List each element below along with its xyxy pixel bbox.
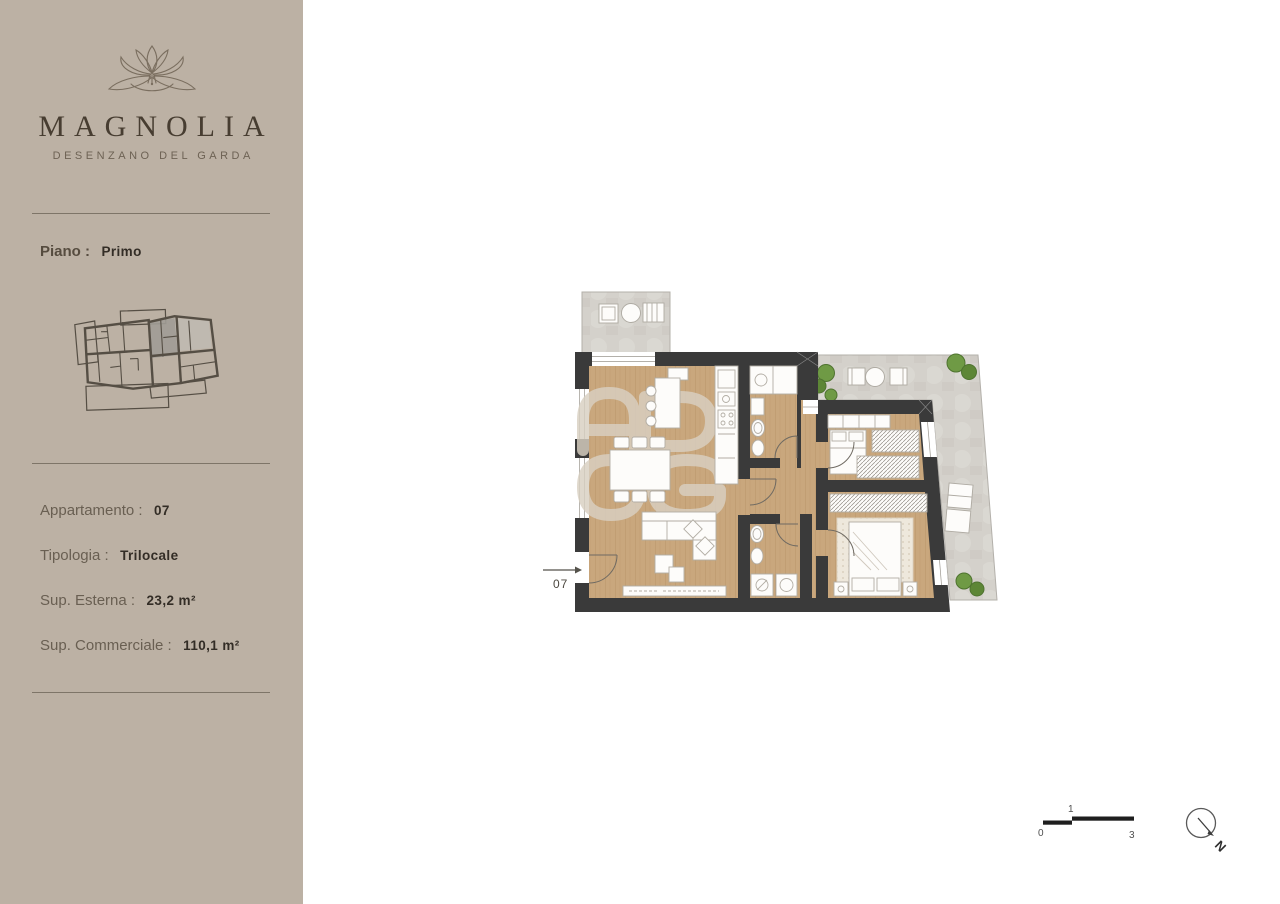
washing-machine: [776, 574, 797, 596]
floor-plan: 07: [535, 282, 1010, 632]
entrance-door-opening: [575, 552, 589, 583]
divider: [32, 692, 270, 693]
bedroom-2-furniture: [830, 494, 927, 596]
commercial-surface-value: 110,1 m²: [183, 638, 240, 653]
apartment-value: 07: [154, 503, 170, 518]
nightstand: [834, 582, 848, 596]
north-compass-icon: N: [1178, 798, 1236, 856]
commercial-surface-row: Sup. Commerciale : 110,1 m²: [40, 637, 240, 655]
kitchen-counter: [715, 366, 738, 484]
floor-value: Primo: [101, 244, 141, 259]
terrace-top-left: [582, 292, 670, 354]
compass-north-label: N: [1212, 838, 1229, 855]
wardrobe: [872, 430, 919, 452]
sideboard: [623, 586, 726, 596]
scale-start-label: 0: [1038, 828, 1044, 839]
divider: [32, 463, 270, 464]
brand-name: MAGNOLIA: [0, 110, 303, 144]
floor-row: Piano : Primo: [40, 243, 142, 261]
wardrobe: [857, 456, 919, 478]
external-surface-row: Sup. Esterna : 23,2 m²: [40, 592, 196, 610]
brand-subtitle: DESENZANO DEL GARDA: [0, 150, 303, 162]
unit-number: 07: [553, 577, 568, 591]
scale-mid-label: 1: [1068, 804, 1074, 815]
building-overview-mini-plan: [72, 300, 232, 415]
commercial-surface-label: Sup. Commerciale :: [40, 637, 172, 654]
nightstand: [903, 582, 917, 596]
external-surface-value: 23,2 m²: [147, 593, 196, 608]
magnolia-flower-icon: [100, 40, 204, 106]
floor-label: Piano :: [40, 243, 90, 260]
dining-table: [610, 437, 670, 502]
typology-row: Tipologia : Trilocale: [40, 547, 179, 565]
scale-end-label: 3: [1129, 830, 1135, 841]
divider: [32, 213, 270, 214]
apartment-row: Appartamento : 07: [40, 502, 170, 520]
apartment-label: Appartamento :: [40, 502, 143, 519]
sidebar: MAGNOLIA DESENZANO DEL GARDA Piano : Pri…: [0, 0, 303, 904]
wardrobe: [830, 494, 927, 512]
scale-bar: 1 0 3: [1035, 798, 1145, 846]
external-surface-label: Sup. Esterna :: [40, 592, 135, 609]
typology-label: Tipologia :: [40, 547, 109, 564]
typology-value: Trilocale: [120, 548, 178, 563]
bed-double: [849, 522, 901, 596]
